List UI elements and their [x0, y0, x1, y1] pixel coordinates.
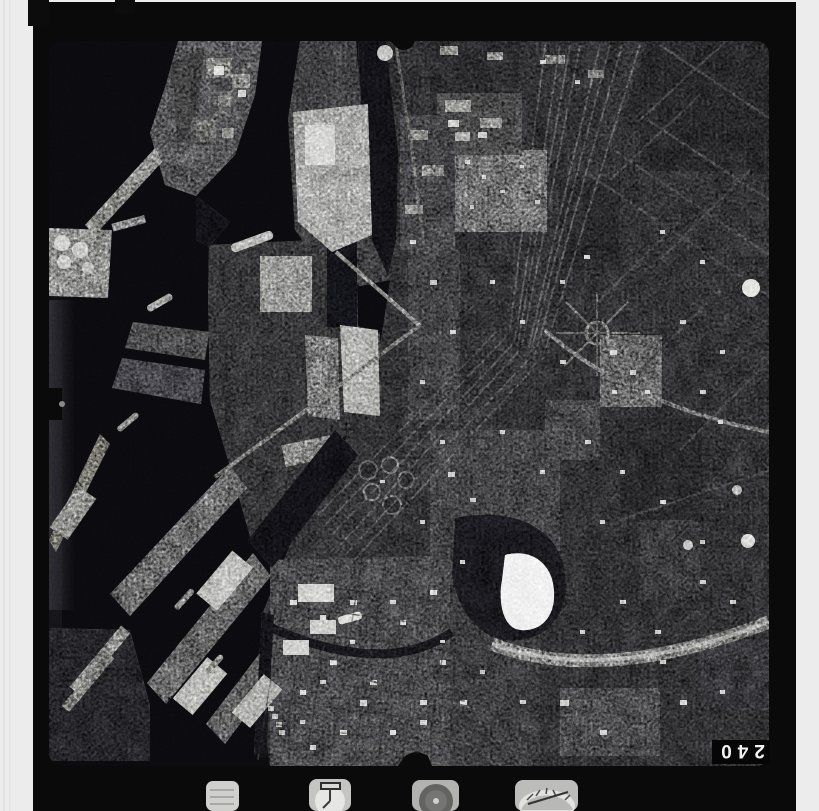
svg-text:240: 240	[715, 740, 765, 761]
